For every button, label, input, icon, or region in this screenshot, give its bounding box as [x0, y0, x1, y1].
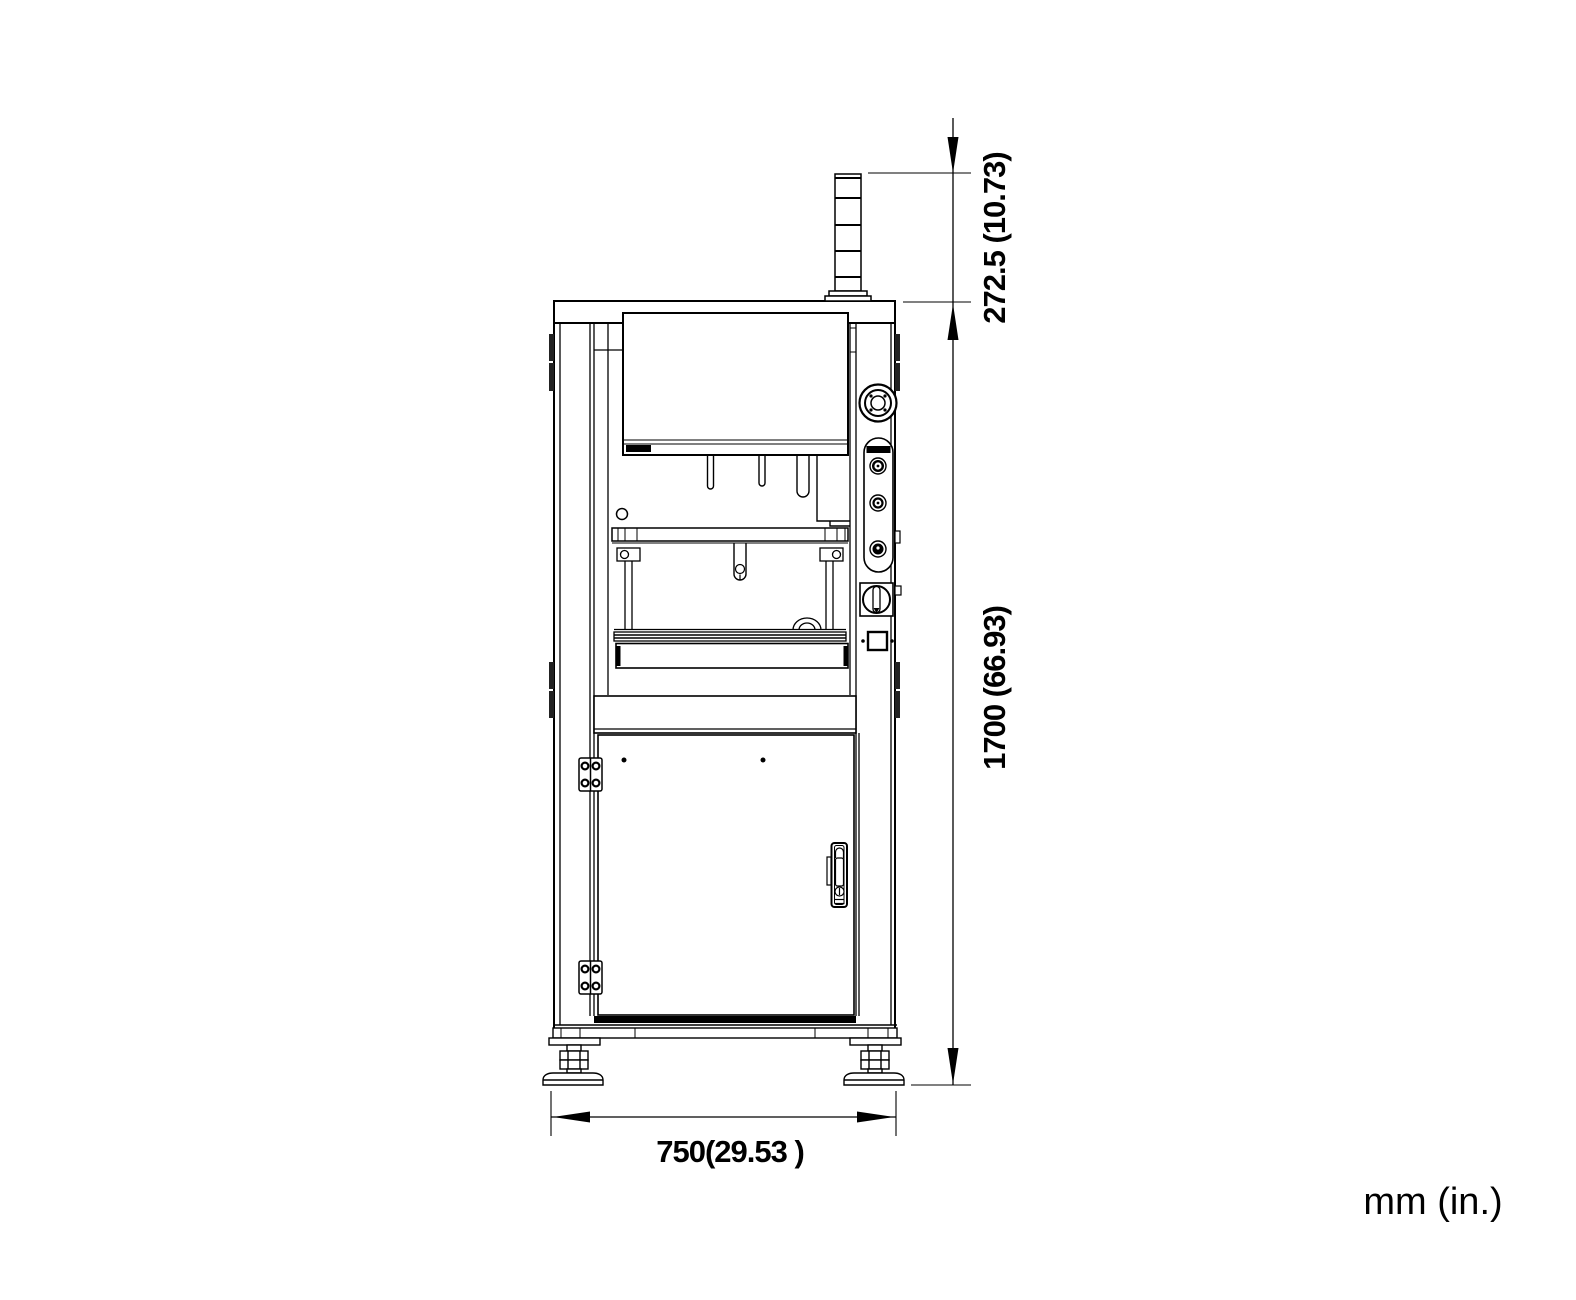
- dimension-overall-width-label: 750(29.53 ): [580, 1132, 880, 1172]
- control-button-1: [870, 458, 886, 474]
- control-button-panel: [864, 438, 893, 572]
- dimension-tower-height-label: 272.5 (10.73): [975, 88, 1015, 388]
- signal-tower: [825, 174, 871, 301]
- table-handle: [793, 618, 821, 630]
- upper-door-panel: [623, 313, 848, 455]
- control-panel-label: [867, 446, 891, 453]
- press-beam: [612, 528, 848, 543]
- power-rotary-switch: [860, 583, 893, 616]
- nameplate: [626, 445, 651, 452]
- technical-drawing-page: 272.5 (10.73) 1700 (66.93) 750(29.53 ) m…: [0, 0, 1576, 1300]
- door-sill: [594, 1016, 856, 1023]
- work-table: [614, 630, 848, 669]
- door-screw: [761, 758, 766, 763]
- work-posts: [617, 548, 843, 630]
- emergency-stop-button: [860, 385, 897, 422]
- control-button-2: [870, 495, 886, 511]
- machine-drawing: [0, 0, 1576, 1300]
- press-tool: [734, 543, 746, 580]
- door-hinge-top: [579, 758, 602, 791]
- arrowhead-up: [948, 304, 959, 340]
- base-frame: [553, 1025, 897, 1038]
- lower-cabinet-door: [594, 735, 856, 1023]
- mount-hole: [617, 509, 628, 520]
- arrowhead-right: [857, 1112, 894, 1123]
- control-button-3: [870, 541, 886, 557]
- door-hinge-bottom: [579, 961, 602, 994]
- arrowhead-left: [553, 1112, 590, 1123]
- dimension-overall-height-label: 1700 (66.93): [975, 538, 1015, 838]
- mid-frame-band: [594, 696, 856, 733]
- arrowhead-down: [948, 1048, 959, 1084]
- arrowhead-down: [948, 137, 959, 173]
- connector-port: [861, 632, 894, 650]
- leveling-foot-right: [844, 1038, 904, 1085]
- door-screw: [622, 758, 627, 763]
- leveling-foot-left: [543, 1038, 603, 1085]
- guide-pins: [708, 455, 851, 526]
- units-note: mm (in.): [1283, 1180, 1576, 1224]
